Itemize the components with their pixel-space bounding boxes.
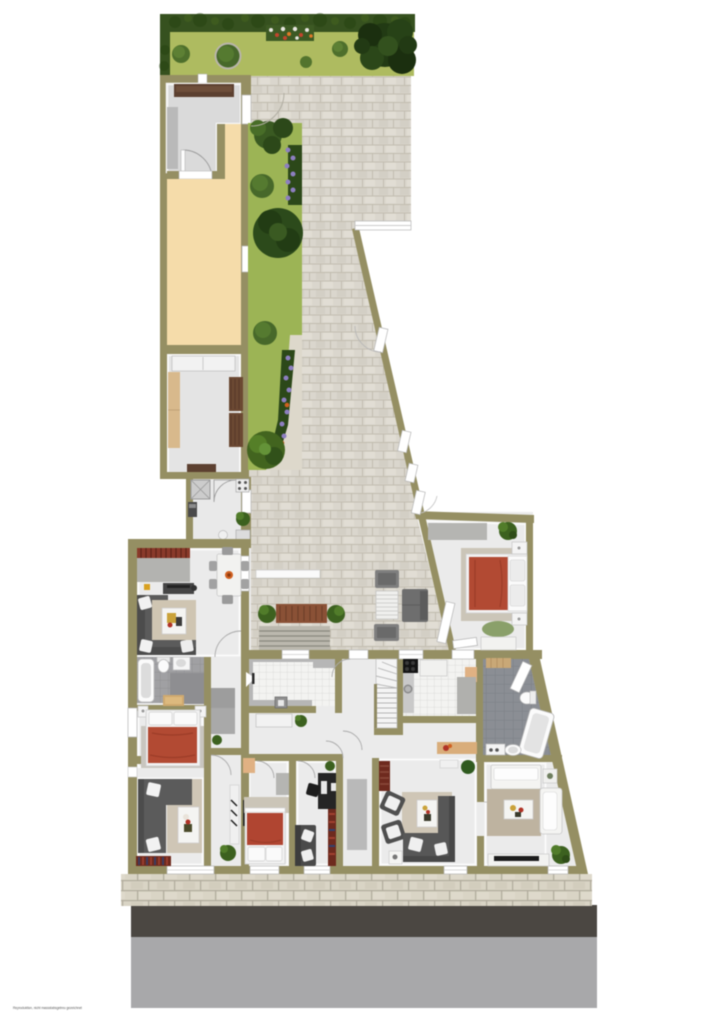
svg-text:Reproduktion, nicht massstabsg: Reproduktion, nicht massstabsgetreu geze… xyxy=(13,1006,82,1010)
